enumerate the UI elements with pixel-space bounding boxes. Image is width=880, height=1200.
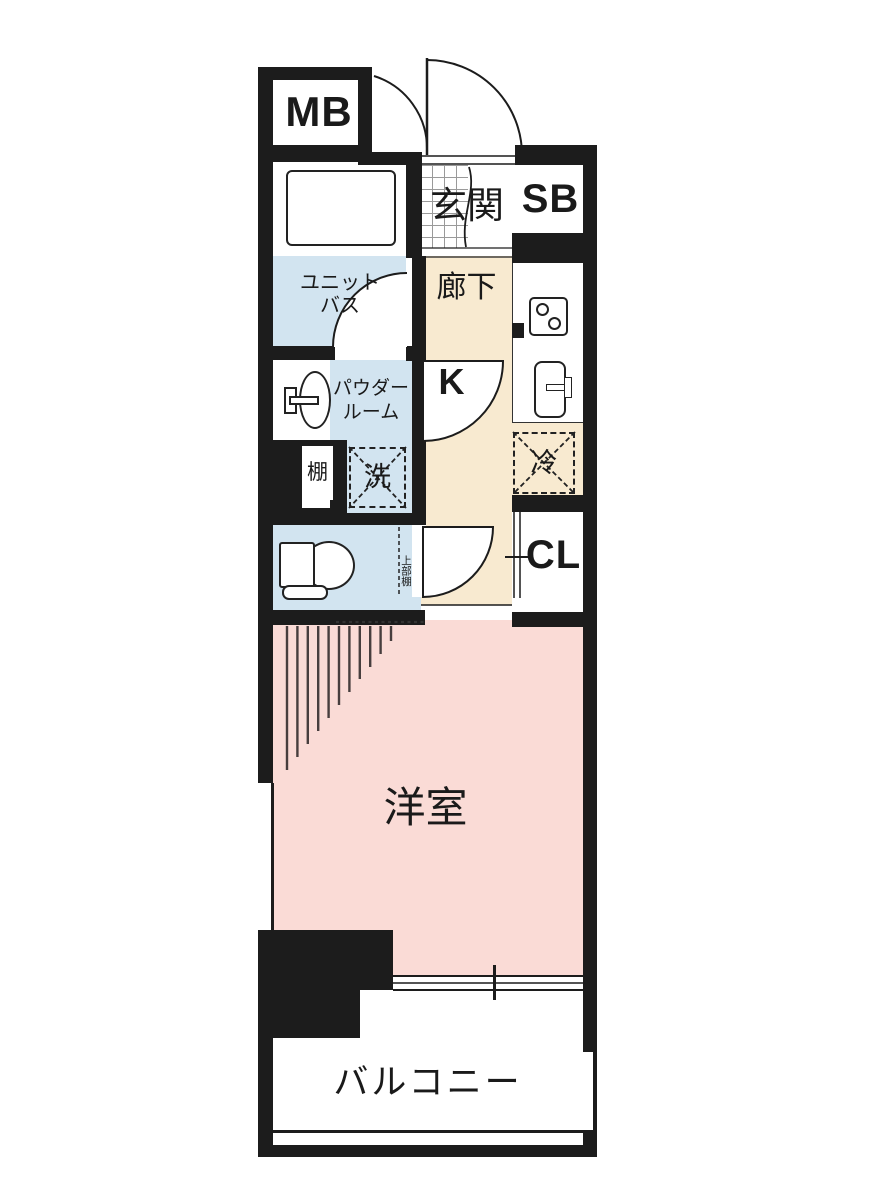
closet-door-lines — [514, 512, 520, 598]
label-shelf: 棚 — [302, 446, 333, 500]
label-entrance: 玄関 — [418, 184, 516, 228]
linework-overlay — [0, 0, 880, 1200]
label-balcony: バルコニー — [293, 1062, 563, 1104]
label-unit-bath-1: ユニット — [288, 272, 392, 294]
hatch-lines — [287, 626, 391, 770]
label-powder-1: パウダー — [330, 378, 412, 400]
label-meter-box: MB — [273, 80, 365, 145]
label-upper-shelf: 上部棚 — [397, 540, 414, 602]
label-powder-2: ルーム — [330, 402, 412, 424]
label-fridge: 冷 — [513, 435, 575, 491]
entrance-door-arc — [427, 60, 522, 155]
label-western-room: 洋室 — [368, 784, 483, 832]
label-washer: 洗 — [349, 450, 406, 505]
label-kitchen: K — [430, 360, 474, 404]
porch-door-arc — [374, 76, 427, 149]
label-closet: CL — [524, 512, 583, 598]
label-unit-bath-2: バス — [288, 295, 392, 317]
label-shoe-box: SB — [518, 165, 583, 233]
floor-plan-canvas: MB 玄関 SB ユニット バス 廊下 K パウダー ルーム 棚 洗 冷 CL … — [0, 0, 880, 1200]
entrance-threshold-lines — [422, 156, 516, 164]
label-corridor: 廊下 — [421, 270, 512, 306]
toilet-door — [423, 527, 493, 597]
